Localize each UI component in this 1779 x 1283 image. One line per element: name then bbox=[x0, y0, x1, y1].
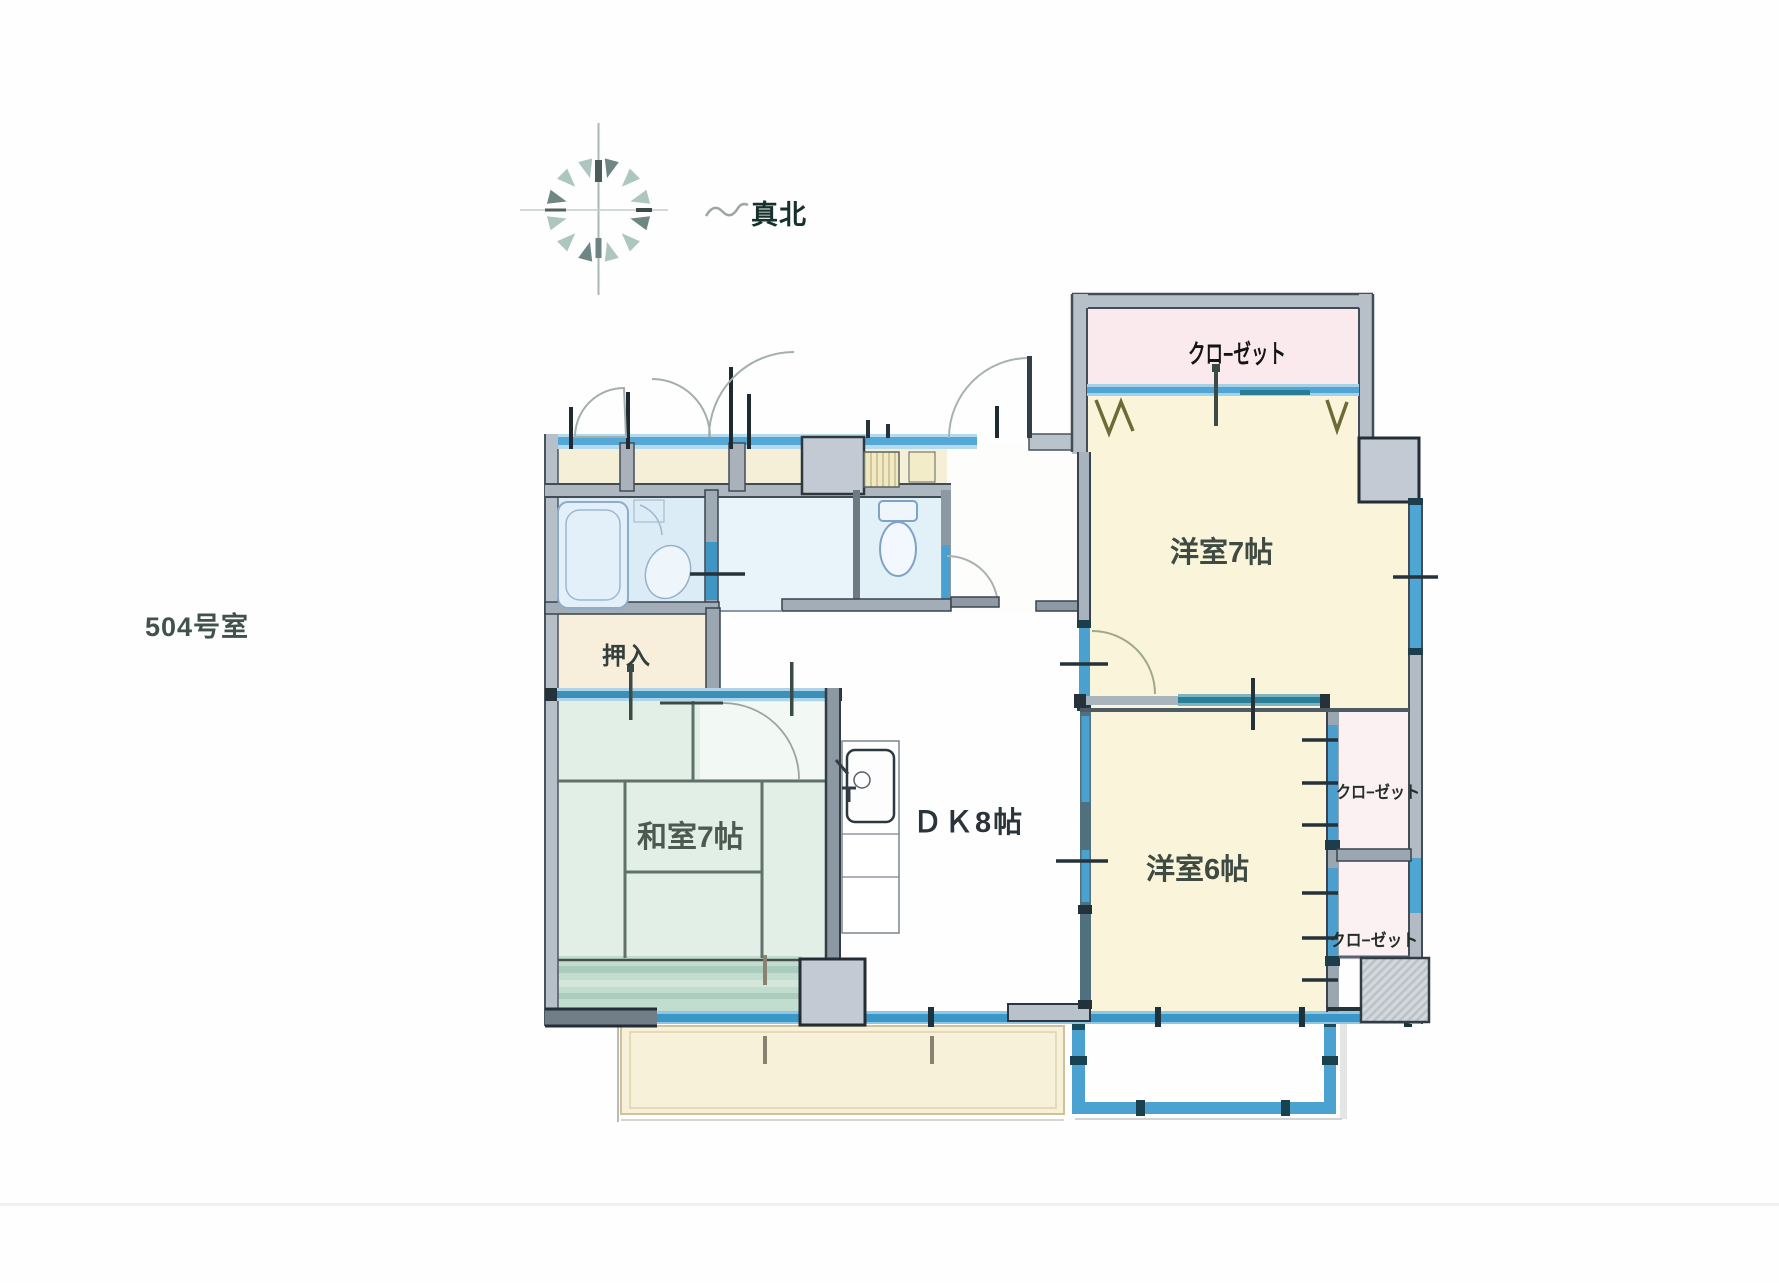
svg-text:クロ−ゼット: クロ−ゼット bbox=[1336, 782, 1420, 802]
svg-text:504号室: 504号室 bbox=[145, 611, 249, 642]
svg-text:ＤＫ8帖: ＤＫ8帖 bbox=[913, 806, 1024, 839]
svg-text:真北: 真北 bbox=[751, 200, 807, 230]
svg-text:押入: 押入 bbox=[602, 643, 650, 670]
svg-text:クロ−ゼット: クロ−ゼット bbox=[1188, 339, 1286, 369]
svg-text:洋室7帖: 洋室7帖 bbox=[1170, 535, 1273, 569]
svg-text:洋室6帖: 洋室6帖 bbox=[1146, 852, 1249, 886]
svg-text:クロ−ゼット: クロ−ゼット bbox=[1330, 930, 1418, 950]
svg-text:和室7帖: 和室7帖 bbox=[637, 820, 744, 854]
